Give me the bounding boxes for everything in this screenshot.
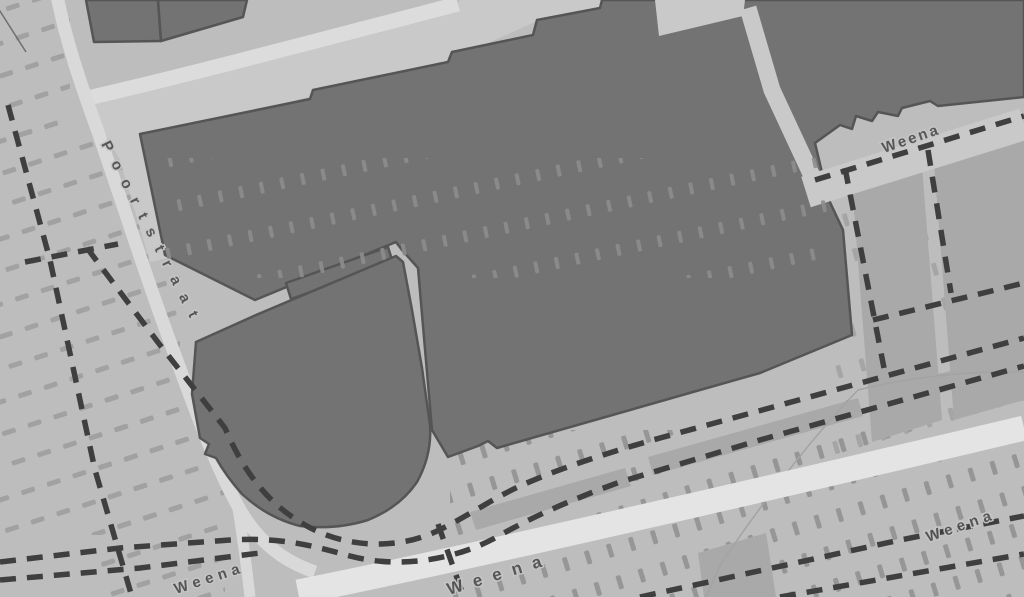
railway-hatch-over-building bbox=[162, 158, 830, 278]
map-canvas[interactable]: Poortstraat Weena Weena Weena Weena bbox=[0, 0, 1024, 597]
map-svg[interactable]: Poortstraat Weena Weena Weena Weena bbox=[0, 0, 1024, 597]
building-top-left-a bbox=[86, 0, 161, 42]
